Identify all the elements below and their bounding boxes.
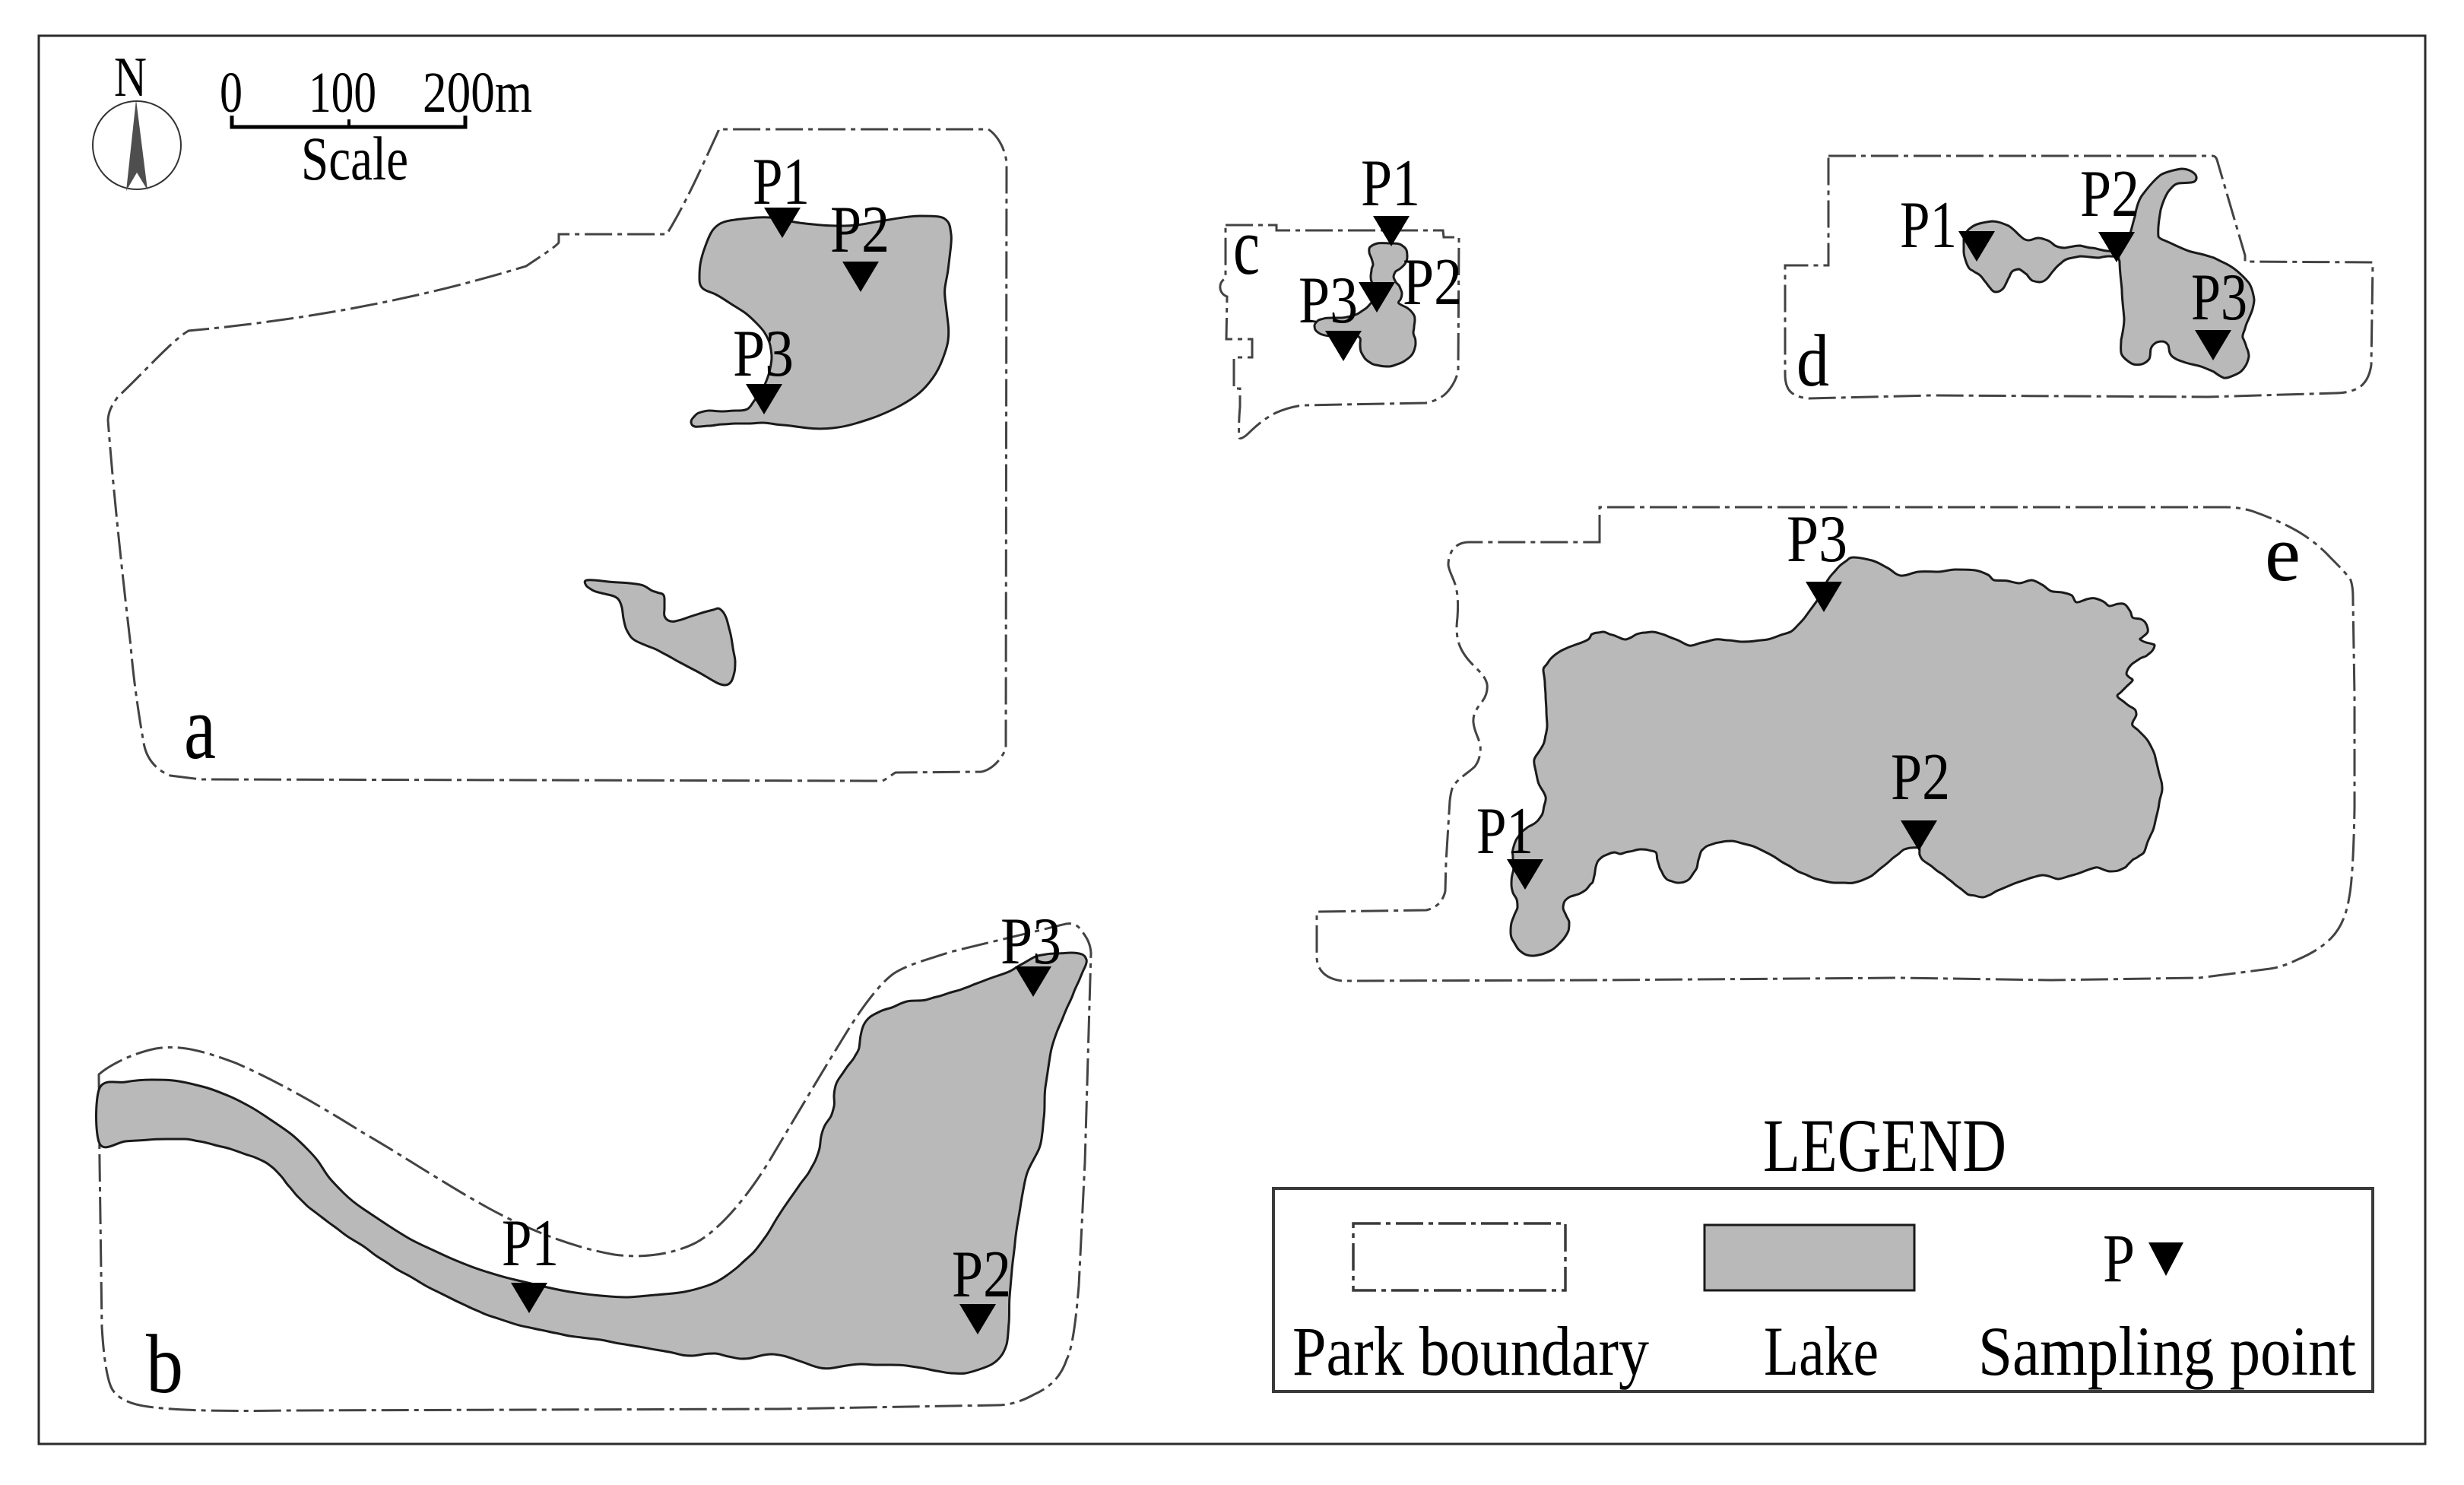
svg-text:P2: P2 bbox=[1403, 246, 1462, 319]
svg-text:P2: P2 bbox=[830, 193, 890, 267]
svg-text:Sampling point: Sampling point bbox=[1978, 1312, 2356, 1390]
svg-text:d: d bbox=[1796, 320, 1829, 401]
svg-text:N: N bbox=[114, 46, 147, 109]
svg-text:0: 0 bbox=[220, 61, 243, 125]
svg-text:P1: P1 bbox=[502, 1207, 559, 1280]
svg-text:P: P bbox=[2103, 1221, 2135, 1296]
svg-text:P1: P1 bbox=[1900, 189, 1957, 262]
svg-text:a: a bbox=[184, 677, 216, 778]
svg-text:LEGEND: LEGEND bbox=[1763, 1103, 2006, 1188]
svg-text:c: c bbox=[1233, 202, 1260, 292]
svg-text:P1: P1 bbox=[1476, 795, 1533, 868]
svg-text:P3: P3 bbox=[1787, 503, 1847, 576]
svg-text:P3: P3 bbox=[2191, 261, 2247, 335]
svg-text:P2: P2 bbox=[2080, 157, 2139, 231]
svg-text:e: e bbox=[2265, 509, 2301, 598]
svg-text:Lake: Lake bbox=[1764, 1312, 1879, 1390]
svg-text:P2: P2 bbox=[1891, 741, 1950, 814]
svg-text:Park boundary: Park boundary bbox=[1292, 1312, 1649, 1390]
svg-text:P1: P1 bbox=[1361, 147, 1420, 221]
svg-text:Scale: Scale bbox=[301, 124, 408, 193]
svg-text:P3: P3 bbox=[1299, 264, 1358, 338]
svg-text:b: b bbox=[146, 1318, 183, 1410]
svg-text:100: 100 bbox=[309, 61, 376, 125]
svg-text:200m: 200m bbox=[423, 61, 532, 125]
svg-text:P3: P3 bbox=[733, 317, 794, 391]
svg-text:P2: P2 bbox=[952, 1238, 1011, 1312]
